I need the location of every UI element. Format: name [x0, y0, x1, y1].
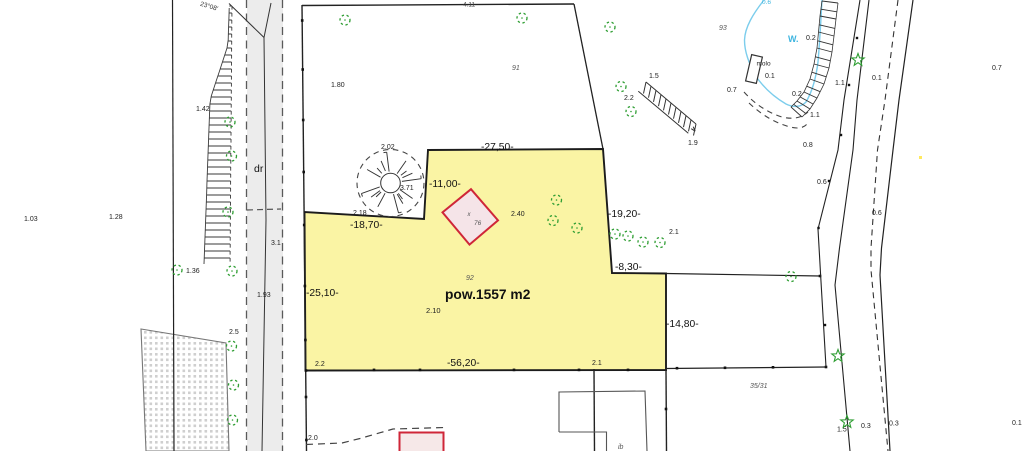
svg-text:molo: molo — [757, 61, 771, 68]
svg-text:1.93: 1.93 — [257, 292, 271, 299]
svg-text:2.1: 2.1 — [669, 229, 679, 236]
svg-text:1.28: 1.28 — [109, 214, 123, 221]
svg-text:-27,50-: -27,50- — [481, 142, 514, 153]
svg-text:91: 91 — [512, 65, 520, 72]
svg-text:0.8: 0.8 — [803, 142, 813, 149]
svg-text:2.5: 2.5 — [229, 329, 239, 336]
svg-text:2.10: 2.10 — [426, 306, 441, 315]
svg-text:1.9: 1.9 — [688, 140, 698, 147]
svg-text:0.1: 0.1 — [872, 75, 882, 82]
svg-text:4.11: 4.11 — [463, 2, 476, 9]
svg-text:-8,30-: -8,30- — [615, 262, 642, 273]
svg-text:1.5: 1.5 — [649, 73, 659, 80]
svg-text:0.3: 0.3 — [889, 421, 899, 428]
svg-text:W.: W. — [788, 34, 799, 44]
svg-text:93: 93 — [719, 25, 727, 32]
svg-text:0.6: 0.6 — [872, 210, 882, 217]
svg-text:pow.1557 m2: pow.1557 m2 — [445, 287, 531, 302]
svg-text:-18,70-: -18,70- — [350, 220, 383, 231]
svg-text:0.2: 0.2 — [806, 35, 816, 42]
svg-text:2.18: 2.18 — [353, 210, 367, 217]
svg-text:2.02: 2.02 — [381, 144, 395, 151]
svg-text:1.1: 1.1 — [835, 80, 845, 87]
svg-text:-11,00-: -11,00- — [429, 179, 461, 190]
svg-text:3.71: 3.71 — [400, 185, 414, 192]
svg-text:2.2: 2.2 — [315, 361, 325, 368]
svg-text:1.1: 1.1 — [810, 112, 820, 119]
svg-text:-14,80-: -14,80- — [666, 319, 699, 330]
svg-text:1.80: 1.80 — [331, 82, 345, 89]
svg-text:0.6: 0.6 — [817, 179, 827, 186]
svg-text:1.5: 1.5 — [837, 427, 847, 434]
svg-text:35/31: 35/31 — [750, 383, 768, 390]
svg-text:ib: ib — [618, 444, 624, 451]
svg-text:0.2: 0.2 — [792, 91, 802, 98]
svg-text:92: 92 — [466, 275, 474, 282]
svg-text:-19,20-: -19,20- — [608, 209, 641, 220]
svg-text:76: 76 — [474, 220, 482, 227]
svg-text:2.1: 2.1 — [592, 360, 602, 367]
svg-text:0.6: 0.6 — [762, 0, 771, 6]
svg-text:0.3: 0.3 — [861, 423, 871, 430]
svg-text:dr: dr — [254, 163, 264, 175]
svg-text:1.03: 1.03 — [24, 216, 38, 223]
svg-text:3.1: 3.1 — [271, 240, 281, 247]
svg-text:2.40: 2.40 — [511, 211, 525, 218]
svg-text:2.2: 2.2 — [624, 95, 634, 102]
svg-text:-56,20-: -56,20- — [447, 358, 480, 369]
svg-text:0.7: 0.7 — [727, 87, 737, 94]
svg-text:0.1: 0.1 — [1012, 420, 1022, 427]
svg-text:0.1: 0.1 — [765, 73, 775, 80]
svg-text:2.0: 2.0 — [308, 435, 318, 442]
svg-text:0.7: 0.7 — [992, 65, 1002, 72]
svg-text:1.36: 1.36 — [186, 268, 200, 275]
svg-text:-25,10-: -25,10- — [306, 288, 339, 299]
svg-text:1.42: 1.42 — [196, 106, 210, 113]
